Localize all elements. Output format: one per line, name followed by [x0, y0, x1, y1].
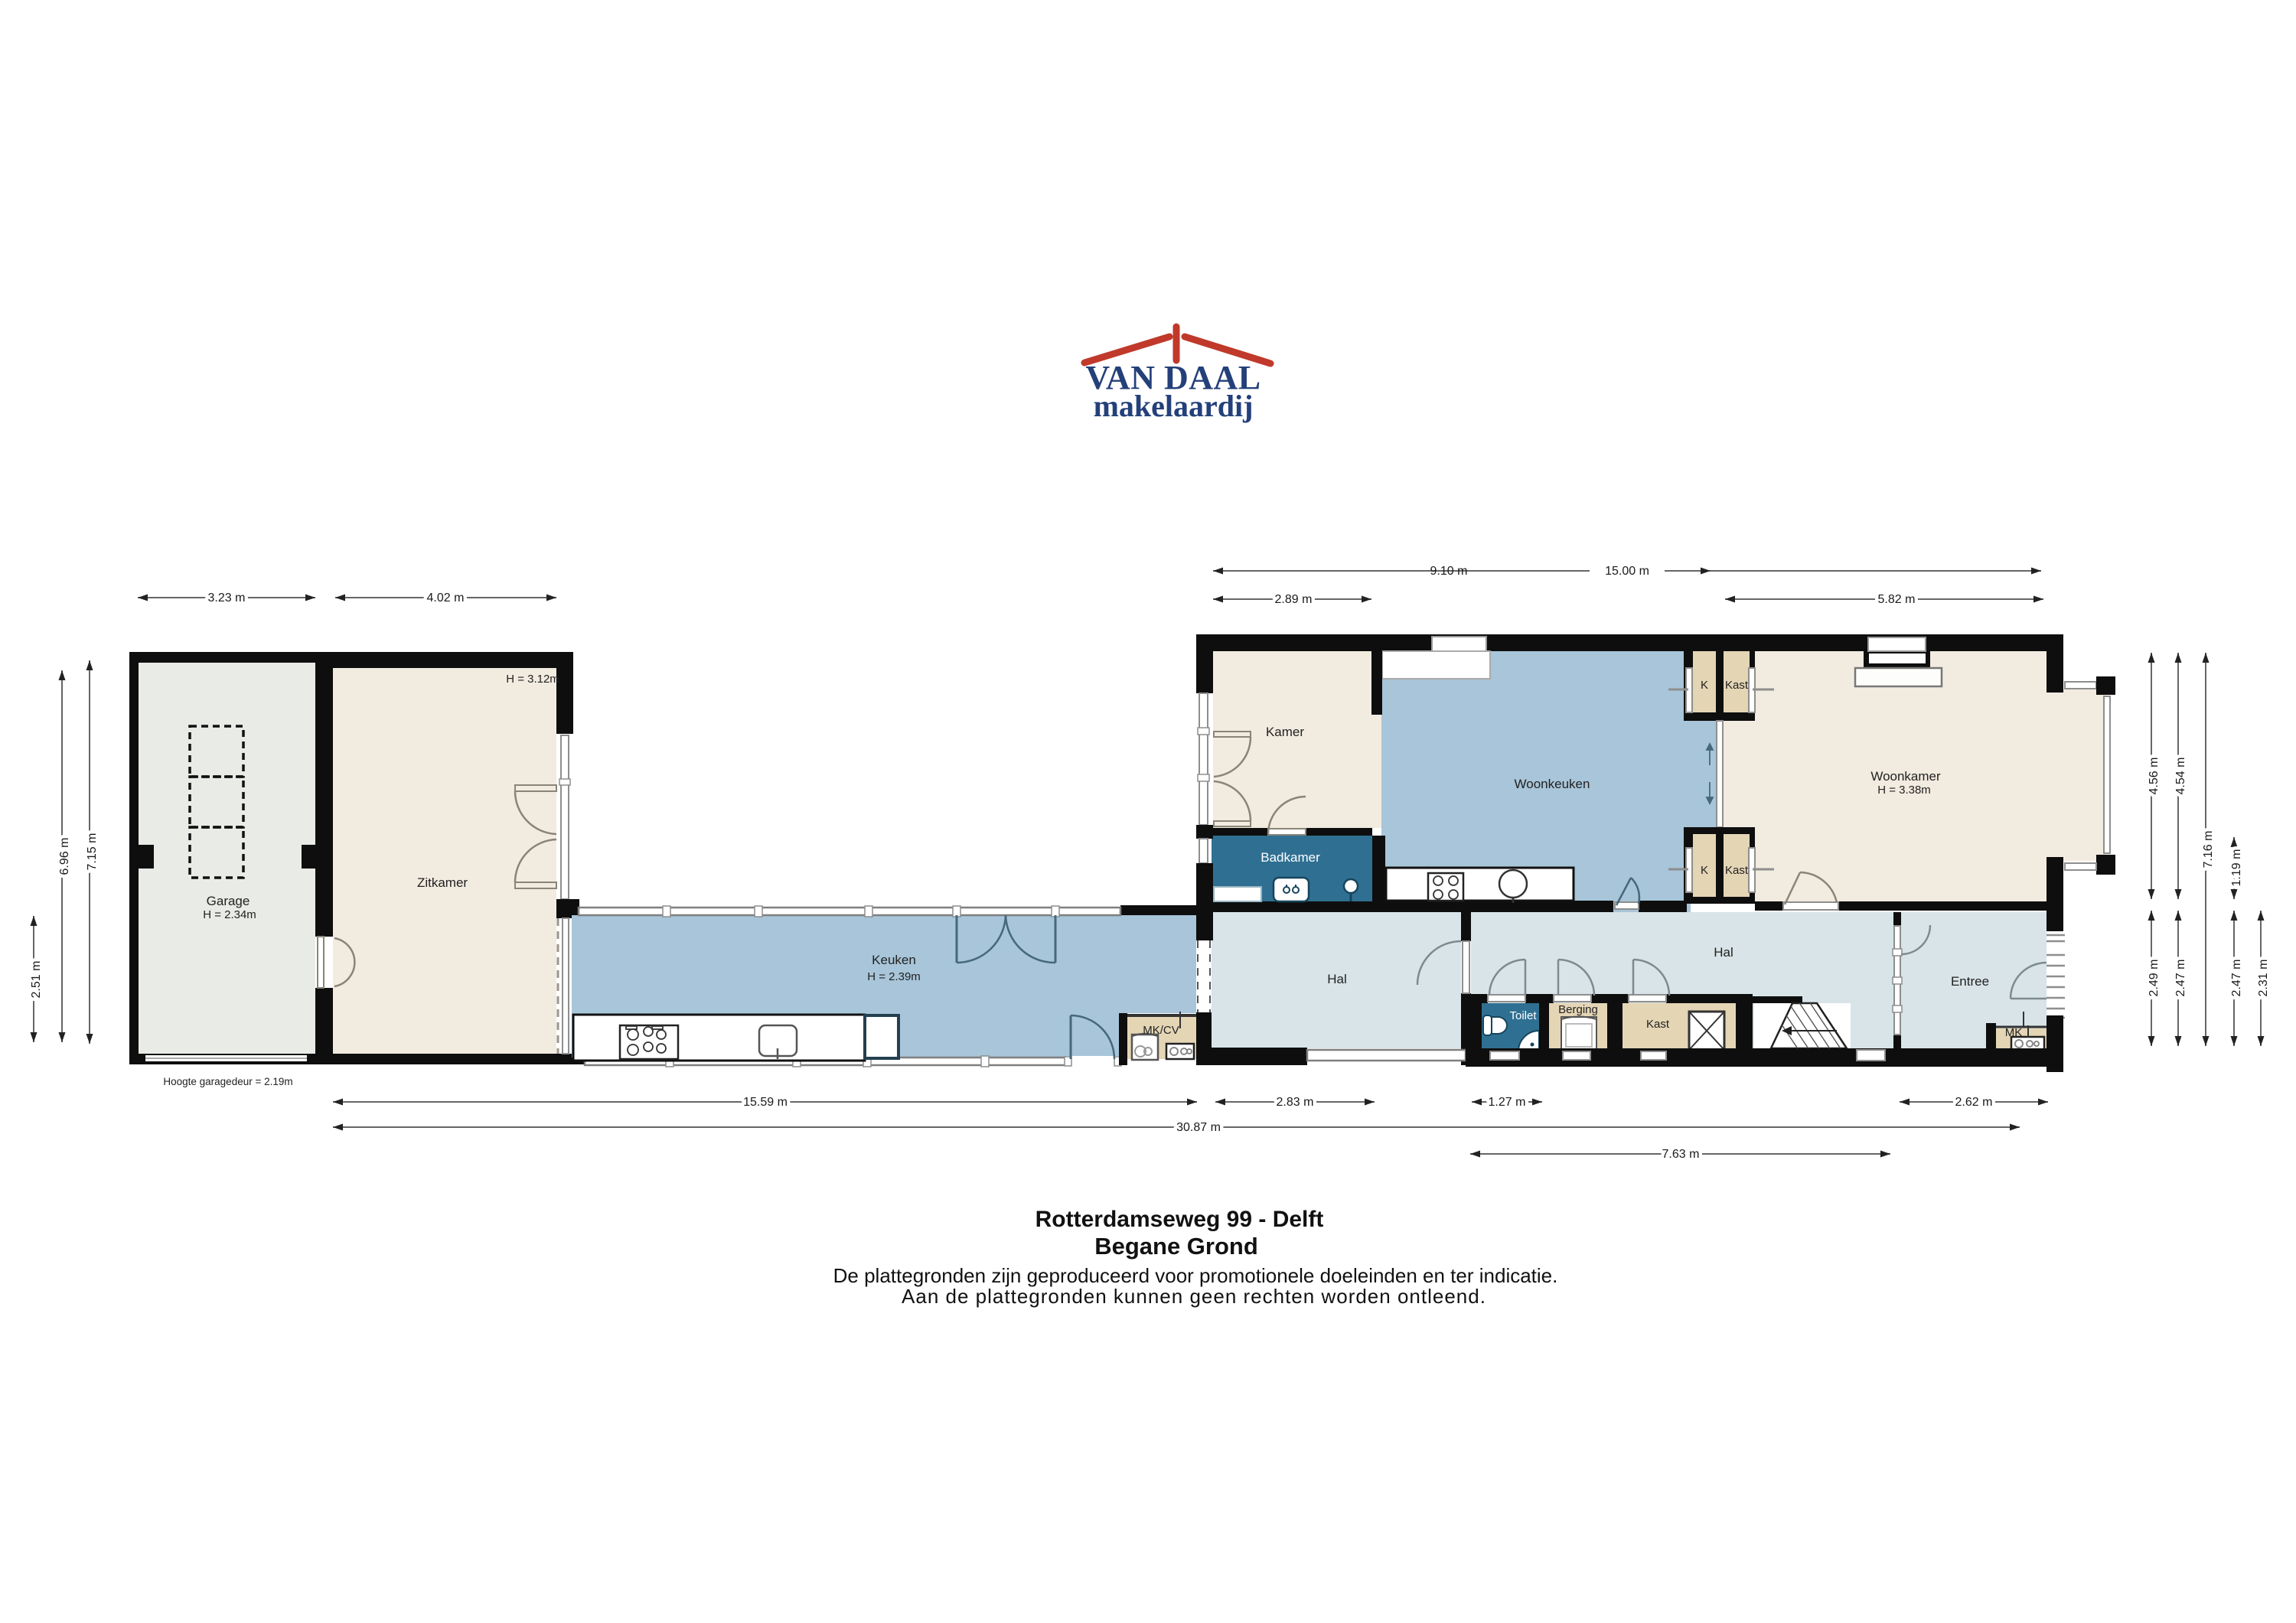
svg-text:2.49 m: 2.49 m [2148, 960, 2161, 997]
svg-text:2.83 m: 2.83 m [1277, 1096, 1314, 1109]
svg-text:15.59 m: 15.59 m [743, 1096, 788, 1109]
svg-text:Entree: Entree [1951, 974, 1989, 989]
svg-text:H = 3.38m: H = 3.38m [1877, 784, 1931, 797]
svg-text:4.56 m: 4.56 m [2148, 758, 2161, 795]
svg-text:H = 3.12m: H = 3.12m [506, 673, 559, 686]
svg-text:MK/CV: MK/CV [1143, 1024, 1179, 1037]
svg-text:2.89 m: 2.89 m [1275, 593, 1313, 606]
svg-text:Zitkamer: Zitkamer [417, 875, 468, 890]
svg-text:2.47 m: 2.47 m [2230, 960, 2243, 997]
svg-text:Aan de plattegronden kunnen ge: Aan de plattegronden kunnen geen rechten… [902, 1285, 1486, 1308]
svg-text:makelaardij: makelaardij [1094, 389, 1254, 423]
svg-text:4.02 m: 4.02 m [427, 592, 465, 605]
svg-text:7.15 m: 7.15 m [86, 833, 99, 871]
svg-text:Toilet: Toilet [1509, 1009, 1537, 1022]
svg-text:Kamer: Kamer [1266, 725, 1304, 739]
svg-text:K: K [1701, 679, 1708, 692]
svg-text:3.23 m: 3.23 m [208, 592, 246, 605]
svg-text:H = 2.39m: H = 2.39m [867, 970, 921, 983]
svg-text:2.47 m: 2.47 m [2174, 960, 2187, 997]
svg-text:H = 2.34m: H = 2.34m [203, 908, 256, 921]
svg-text:Kast: Kast [1725, 864, 1749, 877]
svg-text:Rotterdamseweg 99 - Delft: Rotterdamseweg 99 - Delft [1035, 1207, 1324, 1232]
svg-text:2.31 m: 2.31 m [2257, 960, 2270, 997]
svg-text:Garage: Garage [207, 894, 250, 908]
svg-text:6.96 m: 6.96 m [58, 838, 71, 875]
svg-text:2.62 m: 2.62 m [1955, 1096, 1993, 1109]
svg-text:De plattegronden zijn geproduc: De plattegronden zijn geproduceerd voor … [833, 1264, 1558, 1287]
svg-text:4.54 m: 4.54 m [2174, 758, 2187, 795]
svg-text:Keuken: Keuken [872, 953, 916, 967]
svg-text:Hal: Hal [1327, 972, 1347, 986]
svg-text:Woonkamer: Woonkamer [1870, 769, 1941, 784]
svg-text:Kast: Kast [1725, 679, 1749, 692]
svg-text:5.82 m: 5.82 m [1878, 593, 1916, 606]
svg-text:Woonkeuken: Woonkeuken [1515, 777, 1590, 791]
svg-text:7.63 m: 7.63 m [1662, 1148, 1700, 1161]
svg-text:Hal: Hal [1714, 945, 1733, 960]
svg-text:1.27 m: 1.27 m [1489, 1096, 1526, 1109]
svg-text:Kast: Kast [1646, 1018, 1670, 1031]
svg-text:Berging: Berging [1558, 1003, 1598, 1016]
svg-text:9.10 m: 9.10 m [1430, 565, 1468, 578]
svg-text:15.00 m: 15.00 m [1605, 565, 1649, 578]
svg-text:Badkamer: Badkamer [1261, 850, 1320, 865]
svg-text:30.87 m: 30.87 m [1176, 1121, 1221, 1134]
svg-text:1.19 m: 1.19 m [2230, 849, 2243, 887]
svg-text:Hoogte garagedeur = 2.19m: Hoogte garagedeur = 2.19m [163, 1076, 292, 1087]
svg-text:2.51 m: 2.51 m [30, 961, 43, 999]
svg-text:K: K [1701, 864, 1708, 877]
svg-text:7.16 m: 7.16 m [2202, 831, 2215, 869]
svg-text:Begane Grond: Begane Grond [1094, 1233, 1258, 1260]
